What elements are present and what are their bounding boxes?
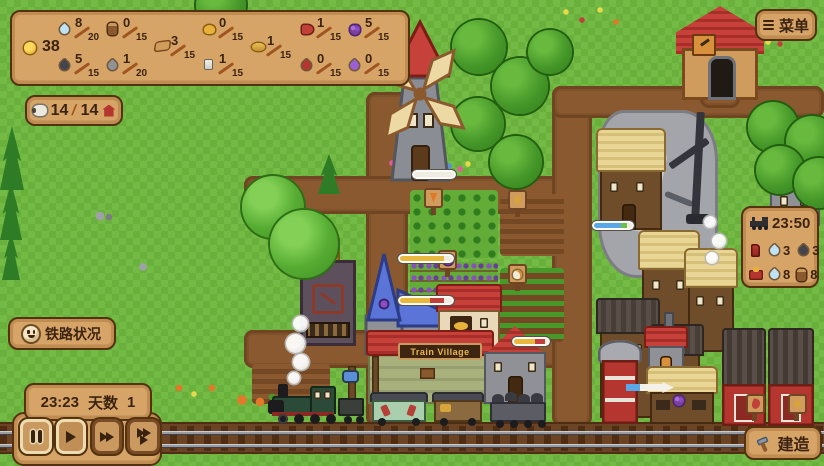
railway-status-label: 铁路状况 xyxy=(45,324,101,344)
wheat-icon xyxy=(514,195,521,206)
fastest-icon xyxy=(134,428,154,445)
smiley-icon xyxy=(23,326,39,342)
cab-window xyxy=(314,391,321,399)
resources-panel: 38 820 515 015 120 315 015 115 xyxy=(10,10,410,86)
boxcar-wheels xyxy=(378,418,386,426)
build-label: 建造 xyxy=(777,431,809,455)
spool-den: 15 xyxy=(232,68,243,79)
window xyxy=(480,318,488,328)
station-sign-text: Train Village xyxy=(410,347,469,357)
progress-fill-green xyxy=(621,223,626,228)
furnace-rune xyxy=(312,284,344,314)
resource-meat: 115 xyxy=(302,16,346,48)
plank-den: 15 xyxy=(184,50,195,61)
window xyxy=(636,182,644,192)
mine-plaque xyxy=(692,34,716,56)
bread-icon xyxy=(252,43,265,51)
window xyxy=(494,362,502,372)
sheep-icon xyxy=(33,105,47,116)
meat-mark xyxy=(380,404,391,417)
menu-label: 菜单 xyxy=(779,15,809,36)
pine-tree xyxy=(0,126,24,190)
fast-forward-button[interactable] xyxy=(92,419,122,454)
water-num: 8 xyxy=(75,15,82,30)
resource-bread: 115 xyxy=(252,34,296,66)
resource-plank: 315 xyxy=(156,34,200,66)
spool-num: 1 xyxy=(219,51,226,66)
population-current: 14 xyxy=(51,102,69,120)
locomotive-wheels xyxy=(278,414,288,424)
boiler-row: 3 3 xyxy=(751,243,819,258)
coal-icon xyxy=(60,61,69,70)
road-vertical-right xyxy=(552,86,592,426)
cheese-num: 0 xyxy=(219,15,226,30)
locomotive-icon xyxy=(750,217,769,230)
tender-logs-count: 8 xyxy=(810,267,817,282)
plank-num: 3 xyxy=(171,33,178,48)
water-drop-icon xyxy=(60,25,69,34)
furnace-grate xyxy=(306,322,350,338)
tender-wheels xyxy=(344,416,352,424)
firebox-icon xyxy=(751,244,760,257)
stone-den: 20 xyxy=(136,68,147,79)
build-button[interactable]: 建造 xyxy=(744,426,822,460)
crate xyxy=(420,368,435,379)
smoke-puff xyxy=(286,334,305,353)
population-panel: 14 / 14 xyxy=(25,95,123,126)
coin-icon xyxy=(24,42,36,54)
menu-button[interactable]: 菜单 xyxy=(755,9,817,41)
window xyxy=(652,280,660,290)
house-icon xyxy=(102,105,115,117)
water-crane-sign xyxy=(342,370,359,383)
plank-icon xyxy=(156,42,169,50)
progress-fill-red xyxy=(535,339,545,344)
hopper-car xyxy=(490,402,546,422)
window xyxy=(676,280,684,290)
chili-icon xyxy=(750,398,761,410)
wine-drop-icon xyxy=(302,61,311,70)
pickaxe-icon xyxy=(700,38,710,46)
log-icon xyxy=(108,23,117,35)
railway-status-button[interactable]: 铁路状况 xyxy=(8,317,116,350)
rune-mark xyxy=(320,292,336,305)
chicken-sign xyxy=(508,264,527,284)
progress-fill xyxy=(400,298,430,303)
fastest-button[interactable] xyxy=(127,419,160,454)
silo-band xyxy=(605,398,635,402)
locomotive-chimney xyxy=(278,384,288,397)
progress-bar-bakery xyxy=(398,296,454,305)
carrot-icon xyxy=(430,193,437,203)
stone-num: 1 xyxy=(123,51,130,66)
bread-icon xyxy=(454,322,468,330)
tree xyxy=(490,136,542,188)
progress-bar-village xyxy=(592,221,634,230)
fast-forward-icon xyxy=(106,432,114,442)
mine-roof xyxy=(676,6,764,54)
chili-sign xyxy=(746,394,765,414)
window xyxy=(528,362,536,372)
wine-den: 15 xyxy=(330,68,341,79)
station-sign: Train Village xyxy=(398,343,482,360)
grapes-icon xyxy=(350,25,360,35)
hopper-wheels xyxy=(496,420,504,428)
day-label: 天数 xyxy=(88,392,118,413)
coin-count: 38 xyxy=(42,38,60,56)
hops-sign xyxy=(788,394,807,414)
boiler-coal-count: 3 xyxy=(812,243,819,258)
flowers xyxy=(560,4,630,32)
round-window xyxy=(380,300,389,309)
window xyxy=(610,182,618,192)
day-value: 1 xyxy=(127,394,135,411)
meat-den: 15 xyxy=(330,32,341,43)
resource-wine: 015 xyxy=(302,52,346,84)
progress-bar-station xyxy=(512,337,550,346)
next-train-time: 23:50 xyxy=(772,215,810,232)
pine-tree xyxy=(0,182,22,240)
boxcar-wheels xyxy=(440,418,448,426)
tender-icon xyxy=(749,270,763,280)
red-roof xyxy=(644,326,688,348)
smoke-puff xyxy=(704,216,716,228)
spool-icon xyxy=(204,59,213,70)
wheat-sign xyxy=(508,190,527,210)
resource-cheese: 015 xyxy=(204,16,248,48)
rocks xyxy=(138,262,156,272)
mana-drop-icon xyxy=(350,61,359,70)
train-status-panel: 23:50 3 3 8 8 xyxy=(741,206,819,288)
blue-spire xyxy=(368,254,400,320)
game-clock: 23:23 xyxy=(41,394,79,411)
pause-icon xyxy=(31,430,35,443)
window xyxy=(716,296,724,306)
coal-num: 5 xyxy=(75,51,82,66)
hamburger-icon xyxy=(763,19,774,32)
tree xyxy=(528,30,572,74)
mana-num: 0 xyxy=(365,51,372,66)
population-separator: / xyxy=(71,102,79,119)
smoke-puff xyxy=(293,316,308,331)
pause-button[interactable] xyxy=(20,419,52,454)
log-icon xyxy=(797,269,806,281)
play-icon xyxy=(66,431,76,443)
boiler-water-count: 3 xyxy=(783,243,790,258)
thatch-roof xyxy=(596,128,666,172)
log-num: 0 xyxy=(123,15,130,30)
mana-den: 15 xyxy=(378,68,389,79)
locomotive-cab xyxy=(310,386,336,414)
door xyxy=(508,376,523,404)
rocks xyxy=(94,210,114,221)
next-train-row: 23:50 xyxy=(750,215,810,232)
silo-band xyxy=(605,376,635,380)
coal-icon xyxy=(797,244,810,257)
progress-fill-red xyxy=(430,298,444,303)
barn-roof xyxy=(768,328,814,388)
progress-bar-vineyard xyxy=(398,254,454,263)
mine-entrance xyxy=(708,56,736,100)
bread-num: 1 xyxy=(267,33,274,48)
grapes-den: 15 xyxy=(378,32,389,43)
window xyxy=(696,296,704,306)
progress-bar-empty xyxy=(412,170,456,179)
grapes-num: 5 xyxy=(365,15,372,30)
resource-mana: 015 xyxy=(350,52,394,84)
bench xyxy=(656,400,670,410)
hammer-icon xyxy=(756,436,771,451)
stone-icon xyxy=(108,61,117,70)
smoke-puff xyxy=(712,234,726,248)
meat-icon xyxy=(302,25,313,34)
log-den: 15 xyxy=(136,32,147,43)
cargo-emblem xyxy=(440,404,451,412)
coal-den: 15 xyxy=(88,68,99,79)
play-button[interactable] xyxy=(56,419,86,454)
chicken-icon xyxy=(513,270,522,279)
water-drop-icon xyxy=(768,244,781,257)
grapes-icon xyxy=(674,396,684,406)
window xyxy=(780,196,788,206)
wine-num: 0 xyxy=(317,51,324,66)
silo-body xyxy=(602,360,638,424)
hops-icon xyxy=(794,399,802,409)
tree xyxy=(270,210,338,278)
meat-mark xyxy=(406,404,416,417)
cheese-den: 15 xyxy=(232,32,243,43)
resource-log: 015 xyxy=(108,16,152,48)
carrot-sign xyxy=(424,188,443,208)
population-capacity: 14 xyxy=(81,102,99,120)
water-den: 20 xyxy=(88,32,99,43)
cab-window xyxy=(324,391,331,399)
meat-num: 1 xyxy=(317,15,324,30)
progress-fill xyxy=(400,256,444,261)
window xyxy=(424,114,433,127)
resource-grapes: 515 xyxy=(350,16,394,48)
bench xyxy=(692,400,706,410)
resource-water: 820 xyxy=(60,16,104,48)
tender-water-count: 8 xyxy=(783,267,790,282)
tender-car xyxy=(338,398,364,416)
tender-row: 8 8 xyxy=(749,267,817,282)
progress-fill xyxy=(514,339,535,344)
cheese-icon xyxy=(204,25,215,34)
smoke-puff xyxy=(288,372,300,384)
smoke-puff xyxy=(293,354,309,370)
crops xyxy=(172,380,226,402)
progress-fill-blue xyxy=(594,223,621,228)
barn-roof xyxy=(722,328,766,388)
pine-tree xyxy=(318,154,340,194)
game-viewport: Train Village xyxy=(0,0,824,466)
bread-den: 15 xyxy=(280,50,291,61)
resource-spool: 115 xyxy=(204,52,248,84)
water-drop-icon xyxy=(768,268,781,281)
resource-coal: 515 xyxy=(60,52,104,84)
time-panel: 23:23 天数 1 xyxy=(24,383,152,421)
pause-icon xyxy=(38,430,42,443)
resource-stone: 120 xyxy=(108,52,152,84)
smoke-puff xyxy=(706,252,718,264)
